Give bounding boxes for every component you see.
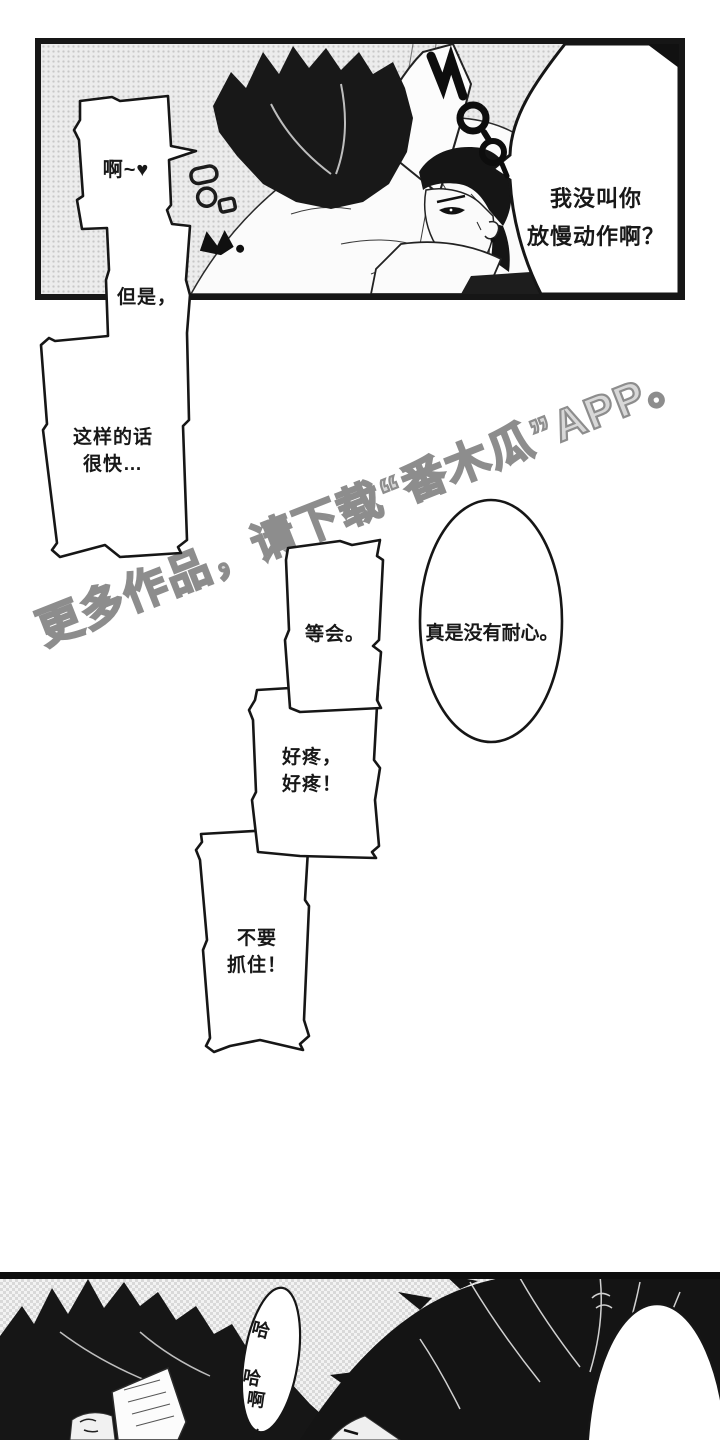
- dialogue-right-bubble: 我没叫你 放慢动作啊？: [511, 180, 681, 256]
- dialogue-zheyang: 这样的话 很快…: [43, 424, 183, 478]
- dialogue-denghui: 等会。: [288, 621, 382, 648]
- dialogue-moan: 啊~♥: [80, 157, 172, 184]
- dialogue-line: 这样的话: [73, 427, 153, 448]
- dialogue-line: 抓住！: [227, 955, 287, 976]
- earring: [491, 238, 496, 243]
- dialogue-line: 好疼，: [282, 747, 342, 768]
- dialogue-buyao: 不要 抓住！: [205, 925, 309, 979]
- dialogue-danshi: 但是，: [104, 284, 190, 311]
- dialogue-haoteng: 好疼， 好疼！: [262, 744, 362, 798]
- dialogue-line: 放慢动作啊？: [527, 224, 665, 249]
- bottom-panel: 哈 哈 啊: [0, 1272, 720, 1440]
- watermark-text: 更多作品，请下载“番木瓜”APP。: [26, 305, 720, 658]
- left-character-hair: [213, 46, 413, 209]
- dialogue-oval: 真是没有耐心。: [420, 620, 564, 647]
- manga-page: 我没叫你 放慢动作啊？ 更多作品，请下载“番木瓜”APP。 啊~♥ 但是， 这样…: [0, 0, 720, 1440]
- sfx-grip-outline-icon: [190, 162, 236, 217]
- left-character-face: [70, 1413, 115, 1440]
- dialogue-line: 很快…: [83, 454, 143, 475]
- dialogue-ha-3: 啊: [245, 1385, 266, 1413]
- dialogue-line: 我没叫你: [550, 186, 642, 211]
- dialogue-line: 好疼！: [282, 774, 342, 795]
- bottom-panel-artwork: [0, 1279, 720, 1440]
- dialogue-line: 不要: [237, 928, 277, 949]
